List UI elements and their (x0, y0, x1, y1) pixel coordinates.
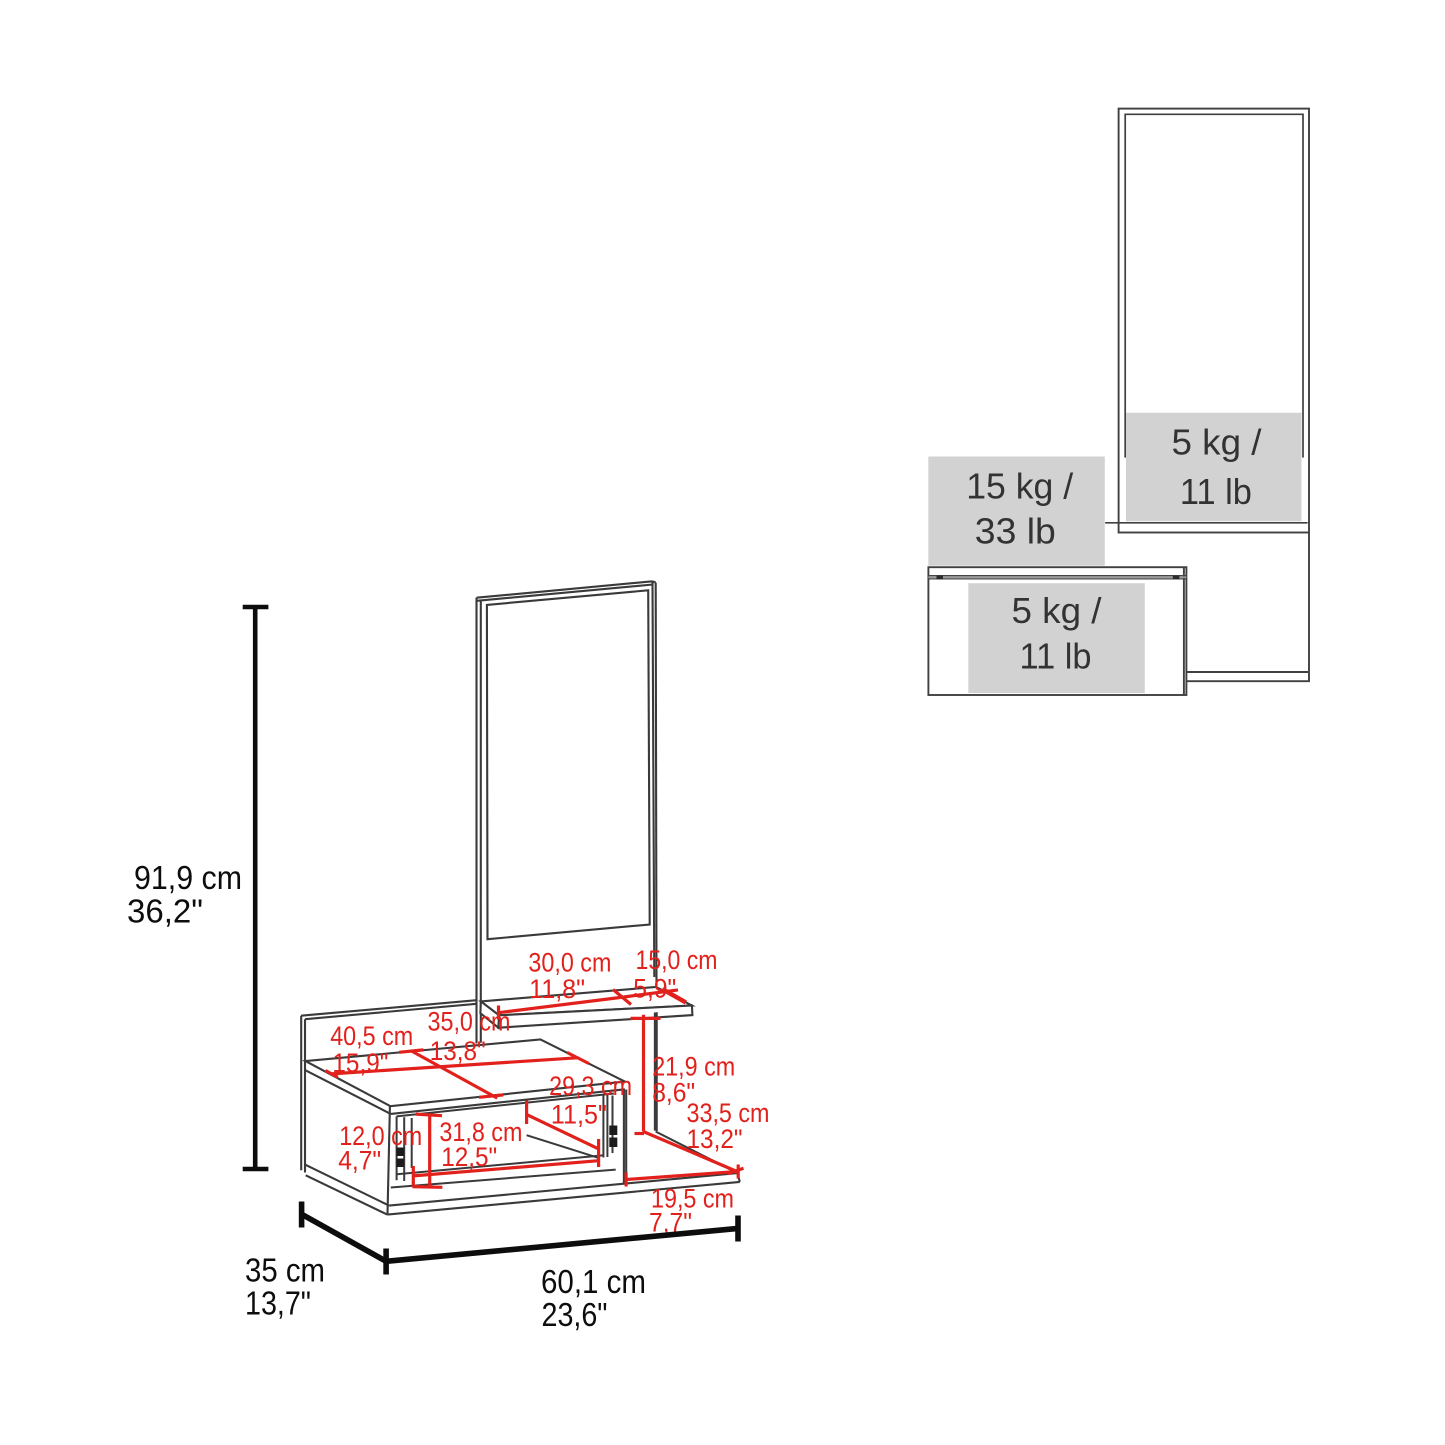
svg-text:11 lb: 11 lb (1020, 635, 1092, 676)
svg-text:40,5 cm: 40,5 cm (330, 1021, 413, 1051)
svg-text:11 lb: 11 lb (1180, 471, 1252, 512)
svg-text:29,3 cm: 29,3 cm (549, 1071, 632, 1101)
svg-text:15,0 cm: 15,0 cm (636, 945, 718, 975)
svg-text:13,2": 13,2" (687, 1124, 743, 1154)
svg-text:35,0 cm: 35,0 cm (428, 1007, 511, 1037)
svg-text:23,6": 23,6" (542, 1296, 608, 1333)
svg-text:30,0 cm: 30,0 cm (528, 947, 611, 977)
svg-text:36,2": 36,2" (127, 893, 203, 930)
svg-text:5 kg /: 5 kg / (1012, 590, 1102, 631)
svg-text:5,9": 5,9" (633, 973, 676, 1003)
svg-text:15 kg /: 15 kg / (966, 466, 1073, 507)
svg-text:5 kg /: 5 kg / (1172, 422, 1262, 463)
svg-text:11,5": 11,5" (551, 1100, 607, 1130)
svg-text:13,7": 13,7" (245, 1285, 311, 1322)
svg-text:33 lb: 33 lb (975, 510, 1056, 551)
svg-text:11,8": 11,8" (529, 974, 585, 1004)
svg-text:13,8": 13,8" (430, 1036, 486, 1066)
svg-text:60,1 cm: 60,1 cm (541, 1263, 646, 1300)
svg-text:35 cm: 35 cm (245, 1252, 325, 1289)
svg-text:12,5": 12,5" (441, 1142, 497, 1172)
svg-text:4,7": 4,7" (338, 1146, 381, 1176)
svg-text:91,9 cm: 91,9 cm (134, 859, 242, 896)
svg-text:15,9": 15,9" (332, 1048, 388, 1078)
